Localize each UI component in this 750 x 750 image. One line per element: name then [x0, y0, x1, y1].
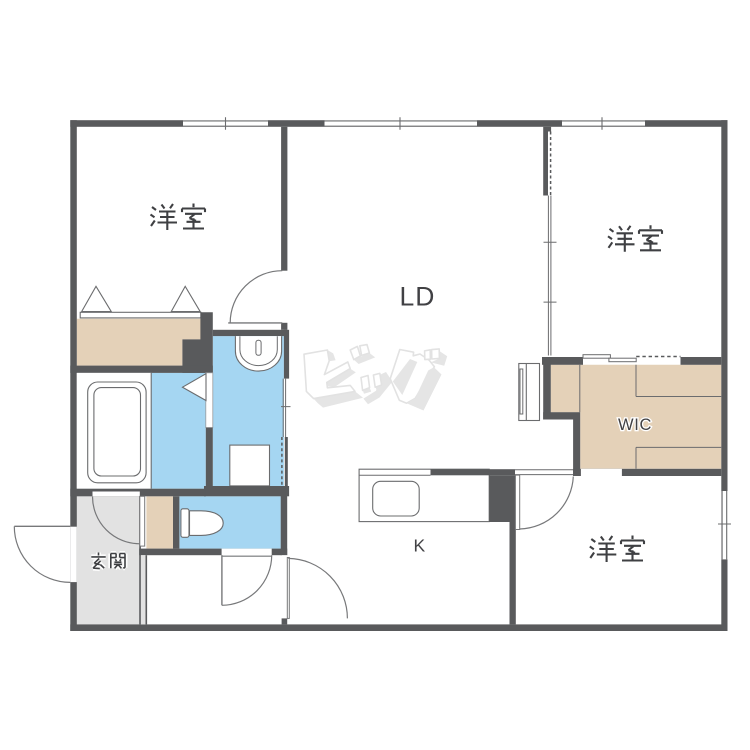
svg-text:WIC: WIC — [618, 416, 652, 434]
svg-text:K: K — [414, 536, 426, 556]
svg-text:LD: LD — [400, 282, 436, 312]
